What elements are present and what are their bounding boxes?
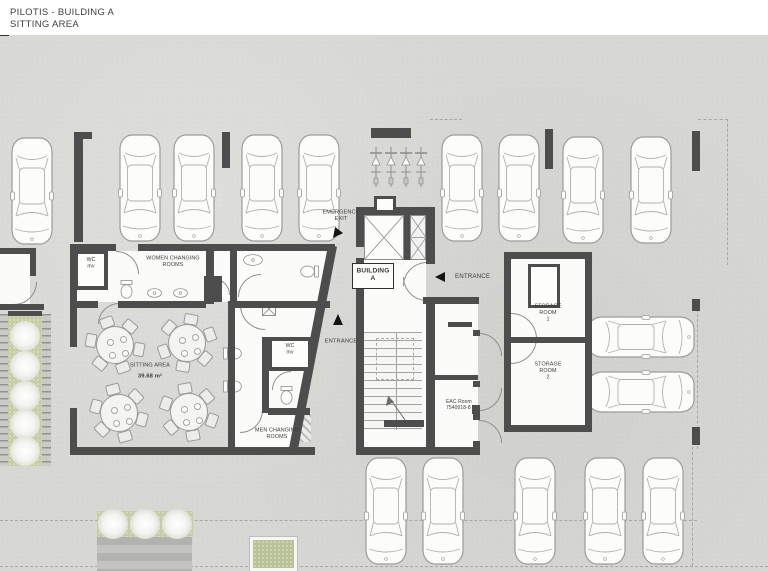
wall	[70, 301, 77, 347]
ticks-hatch	[0, 314, 8, 466]
wall	[230, 250, 237, 307]
label-wc-mid-line: mv	[286, 349, 295, 355]
title-line-2: SITTING AREA	[10, 19, 114, 31]
label-women-line: ROOMS	[146, 261, 199, 267]
staircase	[364, 332, 422, 430]
parked-car	[641, 456, 685, 566]
parked-car	[118, 133, 162, 243]
parked-car	[172, 133, 216, 243]
bicycle-icon	[369, 146, 383, 188]
place-setting	[111, 407, 118, 414]
site-plan-canvas: WCmvWOMEN CHANGINGROOMSWCmvMEN CHANGINGR…	[0, 35, 768, 571]
label-building: BUILDINGA	[357, 267, 390, 283]
drawing-title: PILOTIS - BUILDING A SITTING AREA	[10, 7, 114, 30]
chair-icon	[175, 360, 191, 373]
table-top	[100, 394, 138, 432]
label-sitting-area-line: 39.68 m²	[138, 373, 162, 380]
label-storage1-line: 1	[534, 316, 561, 322]
parked-car	[421, 456, 465, 566]
sink-icon	[173, 285, 188, 295]
wall	[428, 375, 478, 380]
place-setting	[122, 350, 129, 357]
toilet-icon	[300, 264, 319, 279]
wall	[472, 405, 480, 414]
dining-table-set	[88, 382, 148, 442]
wc-room-left	[74, 250, 108, 290]
side-entrance-arrow-icon	[333, 314, 343, 325]
site-boundary-dashed	[698, 119, 728, 120]
label-entrance-main-line: ENTRANCE	[455, 273, 490, 280]
label-wc-mid: WCmv	[286, 343, 295, 355]
place-setting	[126, 418, 133, 425]
storage-shaft	[528, 264, 560, 308]
label-eac: EAC Room7540018-8	[446, 399, 472, 411]
label-storage1: STORAGEROOM1	[534, 303, 561, 322]
wall	[473, 330, 480, 336]
entrance-arrow-icon	[435, 272, 445, 282]
site-boundary-dashed	[430, 119, 462, 120]
wall	[371, 128, 411, 138]
parked-car	[513, 456, 557, 566]
wall	[504, 337, 592, 343]
door-swing-arc	[479, 388, 502, 411]
parked-car	[10, 136, 54, 246]
place-setting	[181, 350, 188, 357]
wall	[70, 447, 315, 455]
wall	[0, 304, 44, 310]
label-emergency: EMERGENCYEXIT	[322, 209, 359, 222]
place-setting	[192, 334, 199, 341]
tree-icon	[10, 351, 40, 381]
label-eac-line: 7540018-8	[446, 405, 472, 411]
wall	[228, 301, 235, 451]
toilet-icon	[279, 386, 294, 405]
label-building-line: A	[357, 275, 390, 283]
tree-icon	[162, 509, 192, 539]
door-swing-arc	[479, 333, 502, 356]
place-setting	[124, 404, 131, 411]
tree-icon	[10, 381, 40, 411]
ticks-hatch	[42, 314, 51, 466]
table-top	[96, 326, 134, 364]
place-setting	[113, 420, 120, 427]
sink-icon	[243, 253, 263, 265]
label-building-line: BUILDING	[357, 267, 390, 275]
parked-car	[583, 456, 627, 566]
parked-car	[586, 315, 696, 359]
wall	[473, 414, 480, 420]
wall	[545, 129, 553, 169]
place-setting	[183, 419, 190, 426]
bicycle-icon	[384, 146, 398, 188]
label-storage2: STORAGEROOM2	[534, 361, 561, 380]
parked-car	[561, 135, 605, 245]
tree-icon	[10, 436, 40, 466]
label-entrance-side-line: ENTRANCE	[325, 338, 358, 345]
tree-icon	[10, 409, 40, 439]
place-setting	[120, 336, 127, 343]
wall	[356, 309, 364, 455]
stripes-hatch	[97, 537, 192, 571]
parked-car	[240, 133, 284, 243]
elevator-shaft-icon	[364, 215, 404, 260]
place-setting	[194, 348, 201, 355]
wall	[222, 132, 230, 168]
label-entrance-side: ENTRANCE	[325, 338, 358, 345]
wall	[8, 311, 42, 316]
label-storage2-line: 2	[534, 374, 561, 380]
parked-car	[497, 133, 541, 243]
label-wc-left-line: mv	[87, 263, 96, 269]
site-boundary-dashed	[692, 447, 693, 566]
wall	[473, 381, 480, 387]
wall	[138, 244, 238, 251]
label-emergency-line: EMERGENCY	[322, 209, 359, 216]
wall	[504, 425, 592, 432]
label-men: MEN CHANGINGROOMS	[255, 427, 299, 440]
parked-car	[629, 135, 673, 245]
label-sitting-name-line: SITTING AREA	[130, 362, 170, 369]
sink-icon	[147, 285, 162, 295]
column	[374, 196, 396, 213]
wall	[118, 301, 206, 308]
wall	[404, 215, 410, 260]
place-setting	[107, 339, 114, 346]
entrance-arrow-tail	[0, 35, 9, 36]
site-boundary-dashed	[727, 119, 728, 265]
place-setting	[179, 337, 186, 344]
place-setting	[194, 403, 201, 410]
wall	[237, 244, 335, 251]
door-swing-arc	[479, 420, 502, 443]
place-setting	[109, 352, 116, 359]
table-top	[168, 324, 206, 362]
table-top	[170, 393, 208, 431]
wall	[204, 276, 222, 302]
wall	[692, 427, 700, 445]
wall	[426, 207, 435, 264]
wall	[74, 132, 83, 242]
label-men-line: ROOMS	[255, 433, 299, 439]
parked-car	[364, 456, 408, 566]
bicycle-icon	[399, 146, 413, 188]
wall	[504, 252, 592, 259]
wall	[356, 447, 480, 455]
planter-box	[250, 537, 297, 571]
door-swing-arc	[14, 282, 37, 305]
title-line-1: PILOTIS - BUILDING A	[10, 7, 114, 19]
place-setting	[196, 417, 203, 424]
tree-icon	[10, 321, 40, 351]
wall	[230, 301, 330, 308]
stair-direction-arrow	[364, 332, 422, 430]
place-setting	[181, 406, 188, 413]
duct-shaft-icon	[410, 215, 426, 260]
label-women: WOMEN CHANGINGROOMS	[146, 255, 199, 268]
label-sitting-area: 39.68 m²	[138, 373, 162, 380]
bicycle-icon	[414, 146, 428, 188]
parked-car	[440, 133, 484, 243]
label-wc-left: WCmv	[87, 257, 96, 269]
parked-car	[586, 370, 696, 414]
label-sitting-name: SITTING AREA	[130, 362, 170, 369]
label-entrance-main: ENTRANCE	[455, 273, 490, 280]
wall	[448, 322, 472, 327]
wall	[30, 248, 36, 276]
label-emergency-line: EXIT	[322, 216, 359, 223]
wall	[473, 441, 480, 447]
dining-table-set	[158, 381, 218, 441]
toilet-icon	[119, 280, 134, 299]
tree-icon	[98, 509, 128, 539]
wall	[692, 299, 700, 311]
tree-icon	[130, 509, 160, 539]
wall	[384, 420, 424, 427]
floorplan-page: PILOTIS - BUILDING A SITTING AREA WCmvWO…	[0, 0, 768, 571]
wall	[692, 131, 700, 171]
